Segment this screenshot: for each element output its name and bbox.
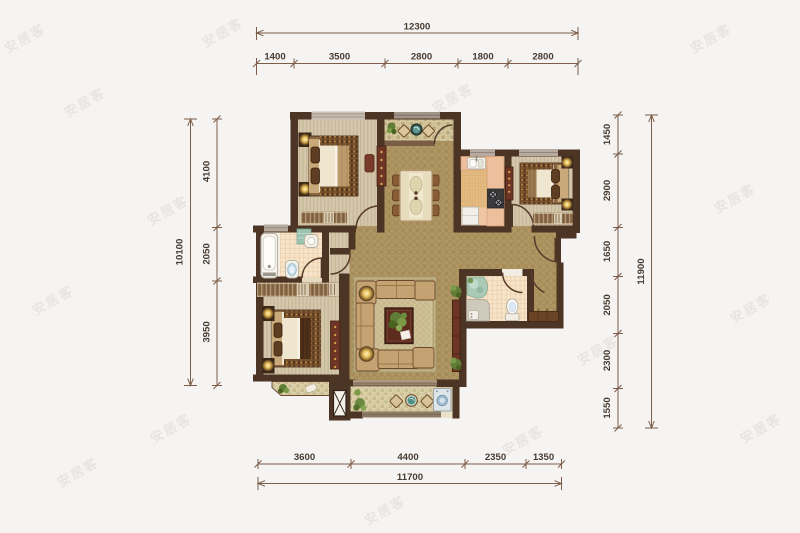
- svg-text:1400: 1400: [264, 52, 285, 63]
- svg-text:4400: 4400: [397, 452, 418, 463]
- svg-text:2350: 2350: [485, 452, 506, 463]
- svg-text:1800: 1800: [472, 52, 493, 63]
- svg-text:2050: 2050: [602, 294, 613, 315]
- svg-text:3600: 3600: [294, 452, 315, 463]
- svg-text:11900: 11900: [636, 258, 647, 284]
- svg-text:2050: 2050: [202, 243, 213, 264]
- svg-text:2800: 2800: [411, 52, 432, 63]
- svg-text:1450: 1450: [602, 124, 613, 145]
- svg-text:1350: 1350: [533, 452, 554, 463]
- svg-text:4100: 4100: [202, 161, 213, 182]
- svg-text:3950: 3950: [202, 321, 213, 342]
- svg-text:1650: 1650: [602, 241, 613, 262]
- svg-text:10100: 10100: [175, 239, 186, 266]
- svg-text:2300: 2300: [602, 350, 613, 371]
- svg-text:1550: 1550: [602, 397, 613, 418]
- svg-text:2900: 2900: [602, 180, 613, 201]
- svg-text:11700: 11700: [397, 472, 423, 483]
- svg-text:2800: 2800: [532, 52, 553, 63]
- svg-text:12300: 12300: [404, 22, 431, 33]
- svg-text:3500: 3500: [329, 52, 350, 63]
